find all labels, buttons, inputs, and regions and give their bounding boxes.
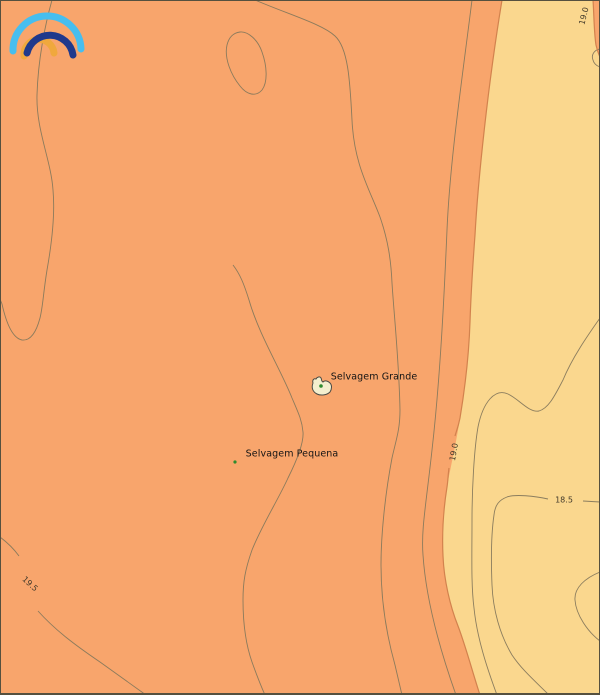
selvagem-grande-dot [319,384,323,388]
contour-map: Selvagem Grande Selvagem Pequena 19.0 19… [0,0,600,695]
selvagem-pequena-dot [233,460,236,463]
map-canvas [0,0,600,695]
